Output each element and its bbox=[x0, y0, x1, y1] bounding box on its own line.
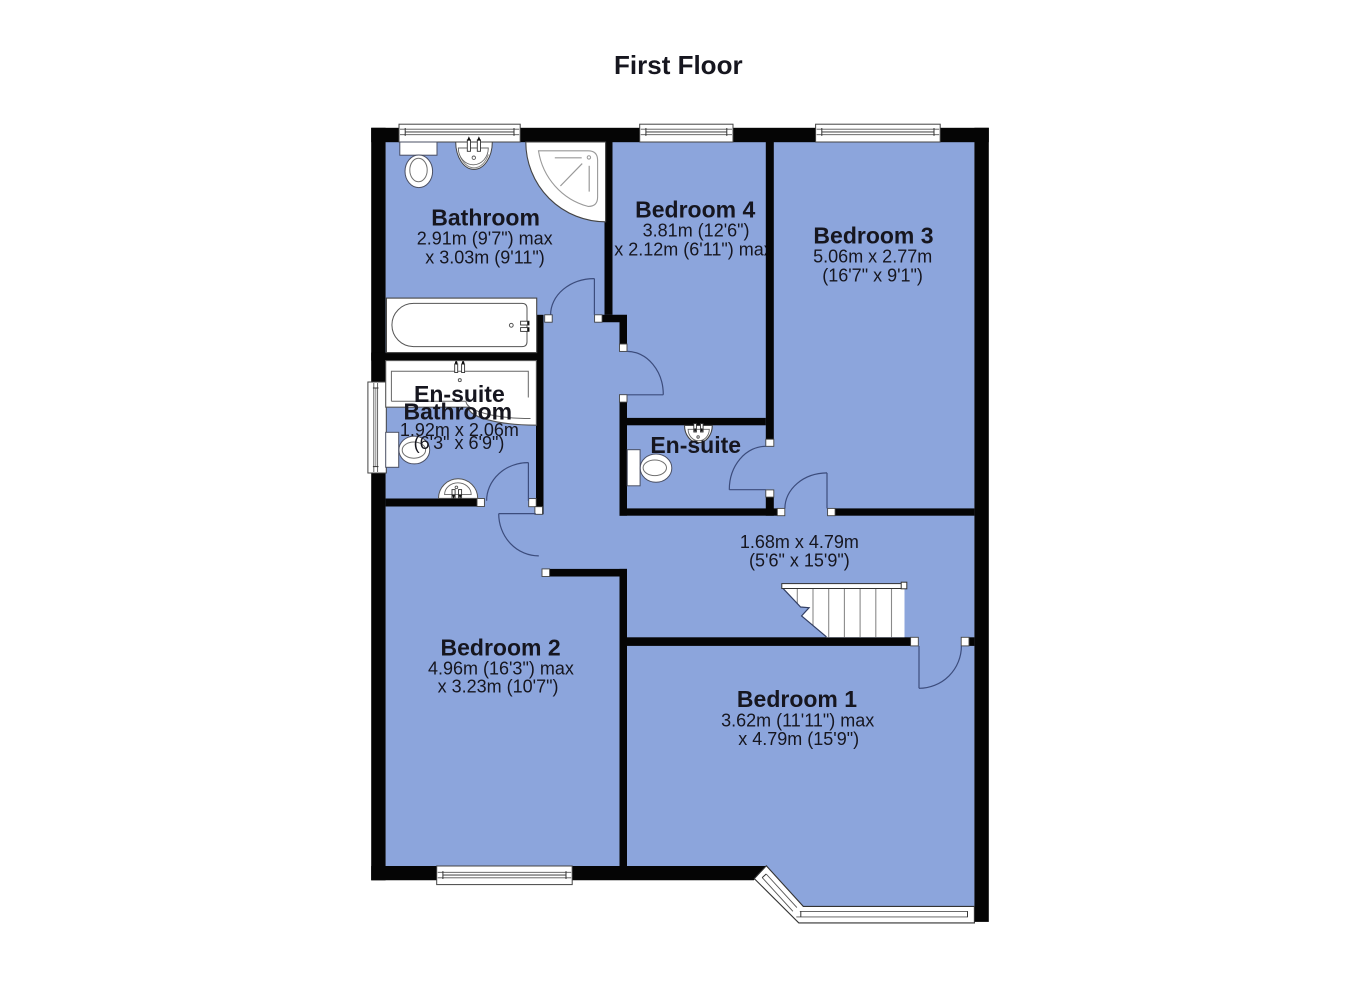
svg-text:Bedroom 4: Bedroom 4 bbox=[635, 196, 755, 222]
svg-text:Bathroom: Bathroom bbox=[431, 205, 540, 231]
svg-text:Bedroom 1: Bedroom 1 bbox=[737, 686, 857, 712]
svg-text:En-suite: En-suite bbox=[650, 432, 741, 458]
svg-text:Bedroom 3: Bedroom 3 bbox=[813, 222, 933, 248]
svg-text:3.62m (11'11") max: 3.62m (11'11") max bbox=[721, 710, 874, 730]
svg-text:(16'7" x 9'1"): (16'7" x 9'1") bbox=[822, 265, 923, 285]
svg-text:x 4.79m (15'9"): x 4.79m (15'9") bbox=[738, 729, 859, 749]
svg-text:1.68m x 4.79m: 1.68m x 4.79m bbox=[740, 532, 859, 552]
svg-text:(6'3" x 6'9"): (6'3" x 6'9") bbox=[414, 433, 505, 453]
svg-text:4.96m (16'3") max: 4.96m (16'3") max bbox=[428, 659, 574, 679]
svg-text:x 3.03m (9'11"): x 3.03m (9'11") bbox=[425, 247, 545, 267]
svg-text:3.81m (12'6"): 3.81m (12'6") bbox=[643, 220, 750, 240]
svg-text:(5'6" x 15'9"): (5'6" x 15'9") bbox=[749, 551, 850, 571]
svg-text:First Floor: First Floor bbox=[614, 50, 743, 80]
svg-text:2.91m (9'7") max: 2.91m (9'7") max bbox=[417, 229, 553, 249]
svg-text:x 3.23m (10'7"): x 3.23m (10'7") bbox=[438, 677, 559, 697]
svg-text:x 2.12m (6'11") max: x 2.12m (6'11") max bbox=[614, 239, 773, 259]
svg-text:Bedroom 2: Bedroom 2 bbox=[441, 635, 561, 661]
svg-text:5.06m x 2.77m: 5.06m x 2.77m bbox=[813, 246, 932, 266]
